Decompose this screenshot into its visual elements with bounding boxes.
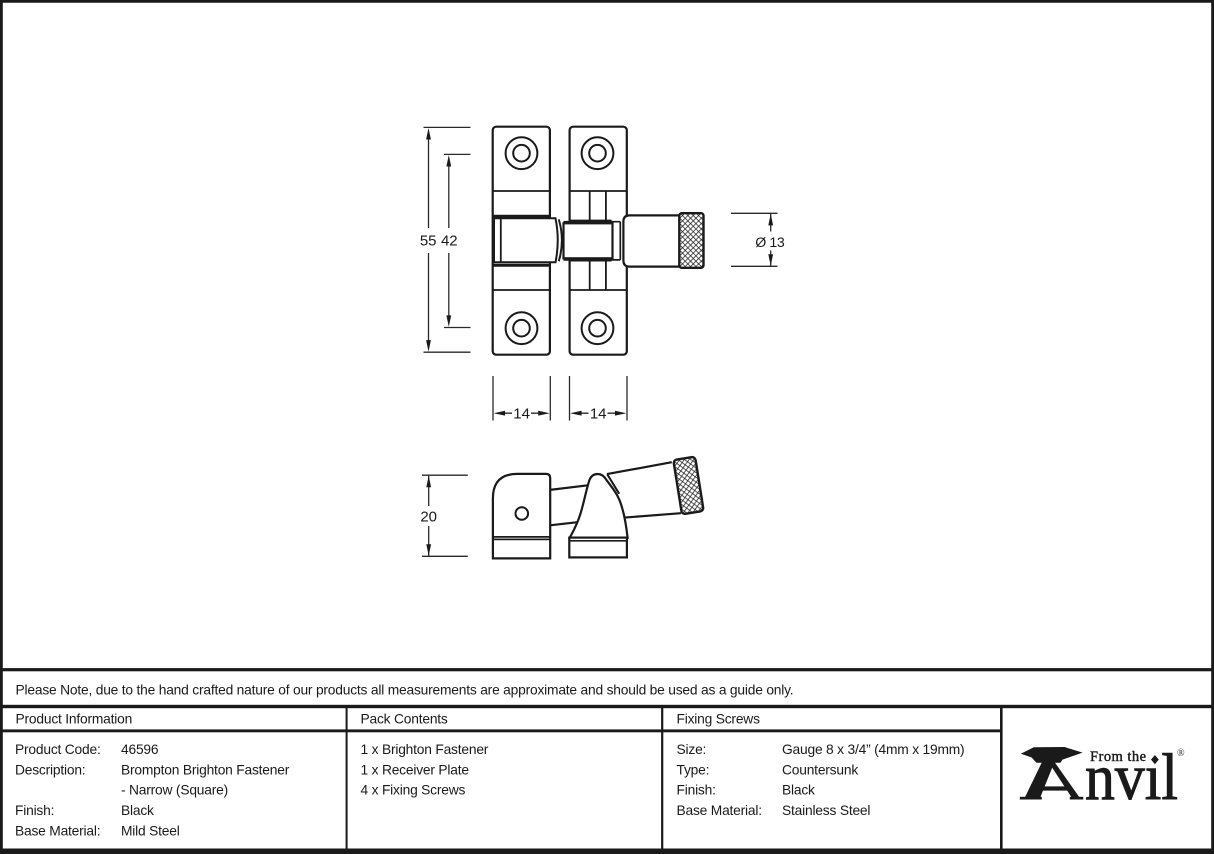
svg-text:42: 42 — [441, 232, 458, 249]
svg-text:55: 55 — [420, 232, 437, 249]
svg-text:Type:: Type: — [677, 762, 710, 777]
svg-text:Base Material:: Base Material: — [15, 823, 100, 838]
svg-text:Please Note, due to the hand c: Please Note, due to the hand crafted nat… — [16, 683, 794, 698]
svg-text:Brompton Brighton Fastener: Brompton Brighton Fastener — [121, 762, 290, 777]
svg-text:Countersunk: Countersunk — [782, 762, 858, 777]
svg-text:14: 14 — [590, 406, 607, 423]
svg-text:Black: Black — [782, 783, 815, 798]
svg-text:Gauge 8 x 3/4” (4mm x 19mm): Gauge 8 x 3/4” (4mm x 19mm) — [782, 742, 964, 757]
svg-text:Base Material:: Base Material: — [677, 803, 762, 818]
svg-text:1 x Brighton Fastener: 1 x Brighton Fastener — [361, 742, 489, 757]
svg-text:1 x Receiver Plate: 1 x Receiver Plate — [361, 762, 470, 777]
svg-text:Pack Contents: Pack Contents — [361, 712, 448, 727]
svg-text:- Narrow (Square): - Narrow (Square) — [121, 783, 228, 798]
svg-text:nvıl: nvıl — [1085, 741, 1178, 814]
svg-text:Size:: Size: — [677, 742, 707, 757]
svg-text:®: ® — [1177, 748, 1185, 759]
svg-text:Product Code:: Product Code: — [15, 742, 101, 757]
svg-text:Description:: Description: — [15, 762, 85, 777]
svg-text:Mild Steel: Mild Steel — [121, 823, 180, 838]
svg-text:Fixing Screws: Fixing Screws — [677, 712, 761, 727]
svg-text:Stainless Steel: Stainless Steel — [782, 803, 870, 818]
svg-text:14: 14 — [513, 406, 530, 423]
svg-text:4 x Fixing Screws: 4 x Fixing Screws — [361, 783, 466, 798]
svg-text:Finish:: Finish: — [15, 803, 54, 818]
svg-text:Finish:: Finish: — [677, 783, 716, 798]
svg-text:Product Information: Product Information — [16, 712, 133, 727]
svg-text:46596: 46596 — [121, 742, 159, 757]
svg-text:Black: Black — [121, 803, 154, 818]
svg-text:Ø 13: Ø 13 — [755, 235, 785, 251]
svg-text:20: 20 — [420, 509, 437, 526]
